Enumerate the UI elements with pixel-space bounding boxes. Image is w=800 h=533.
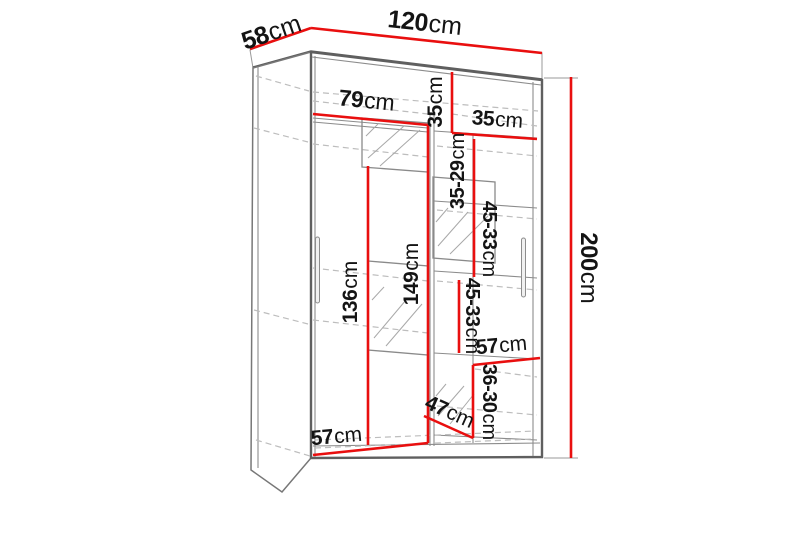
dim-label-45-33-upper: 45-33cm — [478, 201, 500, 277]
dim-label-136: 136cm — [339, 261, 362, 324]
left-door-handle — [316, 237, 320, 303]
left-side-panel — [251, 52, 311, 492]
dim-label-35-horiz: 35cm — [471, 106, 524, 133]
dim-label-57-bottom: 57cm — [310, 423, 363, 450]
dim-label-35-29: 35-29cm — [447, 133, 469, 209]
dim-label-height-200: 200cm — [575, 232, 602, 304]
dim-label-57-right: 57cm — [475, 332, 528, 359]
dim-label-79: 79cm — [338, 84, 396, 115]
diagram-canvas: 58cm 120cm 200cm 79cm 35cm 35cm 35-29cm … — [0, 0, 800, 533]
dim-label-149: 149cm — [400, 243, 423, 306]
dim-label-width-120: 120cm — [386, 5, 463, 41]
right-door-handle — [522, 238, 526, 297]
dim-label-35-vert: 35cm — [424, 76, 447, 127]
dim-label-36-30: 36-30cm — [478, 364, 500, 440]
wardrobe-dimension-diagram: 58cm 120cm 200cm 79cm 35cm 35cm 35-29cm … — [0, 0, 800, 533]
